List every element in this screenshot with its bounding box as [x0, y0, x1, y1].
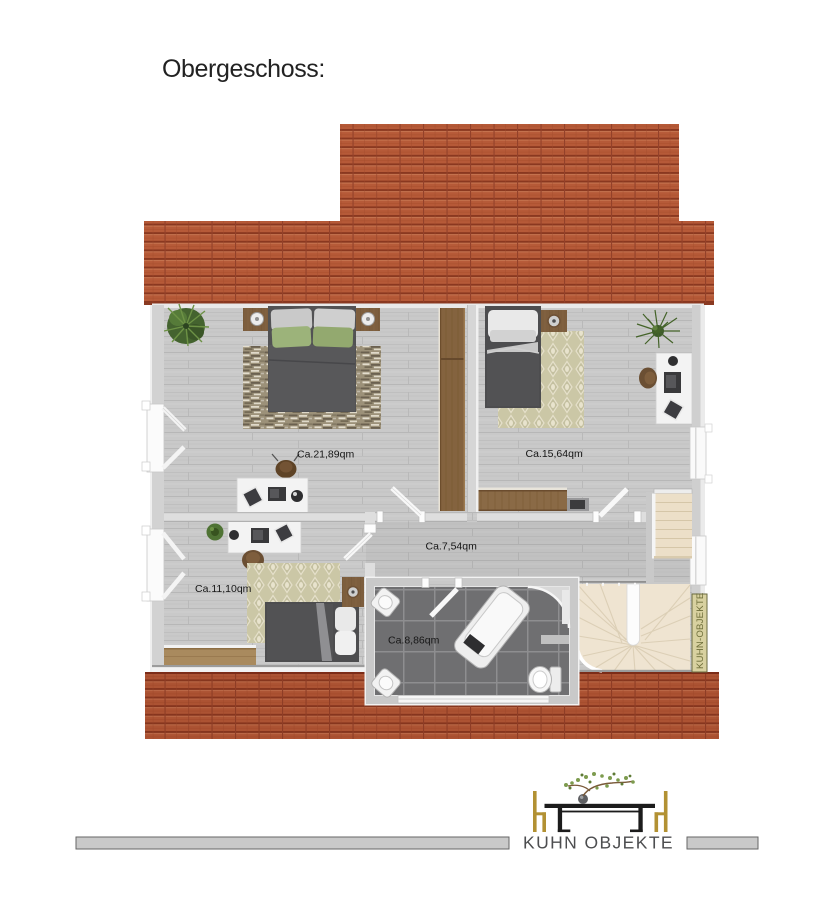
svg-text:Ca.21,89qm: Ca.21,89qm	[297, 449, 354, 461]
svg-text:Ca.7,54qm: Ca.7,54qm	[426, 541, 478, 553]
svg-text:Ca.11,10qm: Ca.11,10qm	[195, 583, 252, 595]
svg-text:KUHN OBJEKTE: KUHN OBJEKTE	[523, 833, 674, 853]
svg-text:Ca.15,64qm: Ca.15,64qm	[526, 448, 583, 460]
svg-text:Ca.8,86qm: Ca.8,86qm	[388, 635, 440, 647]
svg-text:KUHN-OBJEKTE: KUHN-OBJEKTE	[695, 593, 706, 670]
svg-text:Obergeschoss:: Obergeschoss:	[162, 55, 325, 83]
